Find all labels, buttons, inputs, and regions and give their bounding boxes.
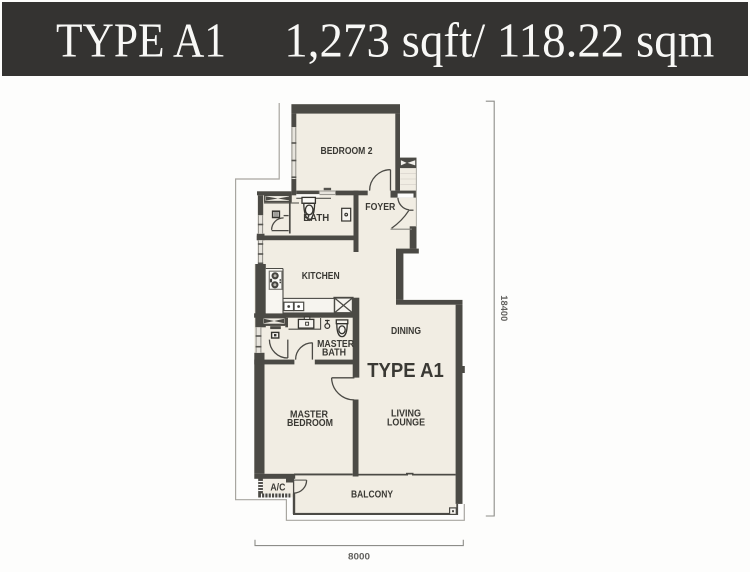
svg-text:TYPE A1: TYPE A1 — [367, 359, 444, 382]
svg-text:TYPE A1: TYPE A1 — [56, 12, 226, 67]
svg-text:KITCHEN: KITCHEN — [302, 270, 340, 282]
svg-text:1,273 sqft/ 118.22 sqm: 1,273 sqft/ 118.22 sqm — [284, 12, 714, 67]
svg-text:BEDROOM 2: BEDROOM 2 — [321, 145, 373, 157]
svg-text:BEDROOM: BEDROOM — [287, 417, 333, 429]
svg-text:A/C: A/C — [270, 483, 285, 494]
svg-text:8000: 8000 — [348, 551, 370, 562]
svg-text:BATH: BATH — [303, 212, 329, 224]
svg-text:18400: 18400 — [498, 295, 509, 321]
svg-text:BALCONY: BALCONY — [351, 489, 393, 501]
svg-text:FOYER: FOYER — [365, 201, 395, 213]
svg-text:BATH: BATH — [322, 347, 346, 359]
svg-text:DINING: DINING — [391, 325, 421, 337]
svg-text:LOUNGE: LOUNGE — [387, 417, 425, 429]
